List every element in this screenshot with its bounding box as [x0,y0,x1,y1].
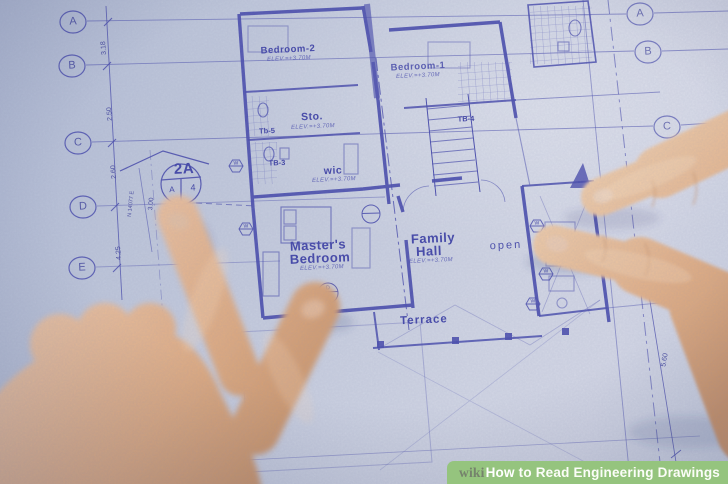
watermark-title: to Read Engineering Drawings [515,465,720,480]
wikihow-watermark-bar: wikiHow to Read Engineering Drawings [447,461,728,484]
photo-blueprint-scene: A B C D E A B C 3.18 2.50 2.60 4.25 5.60… [0,0,728,484]
watermark-title-bold: How [486,465,515,480]
photo-grain [0,0,728,484]
wikihow-logo-text: wiki [459,465,485,481]
